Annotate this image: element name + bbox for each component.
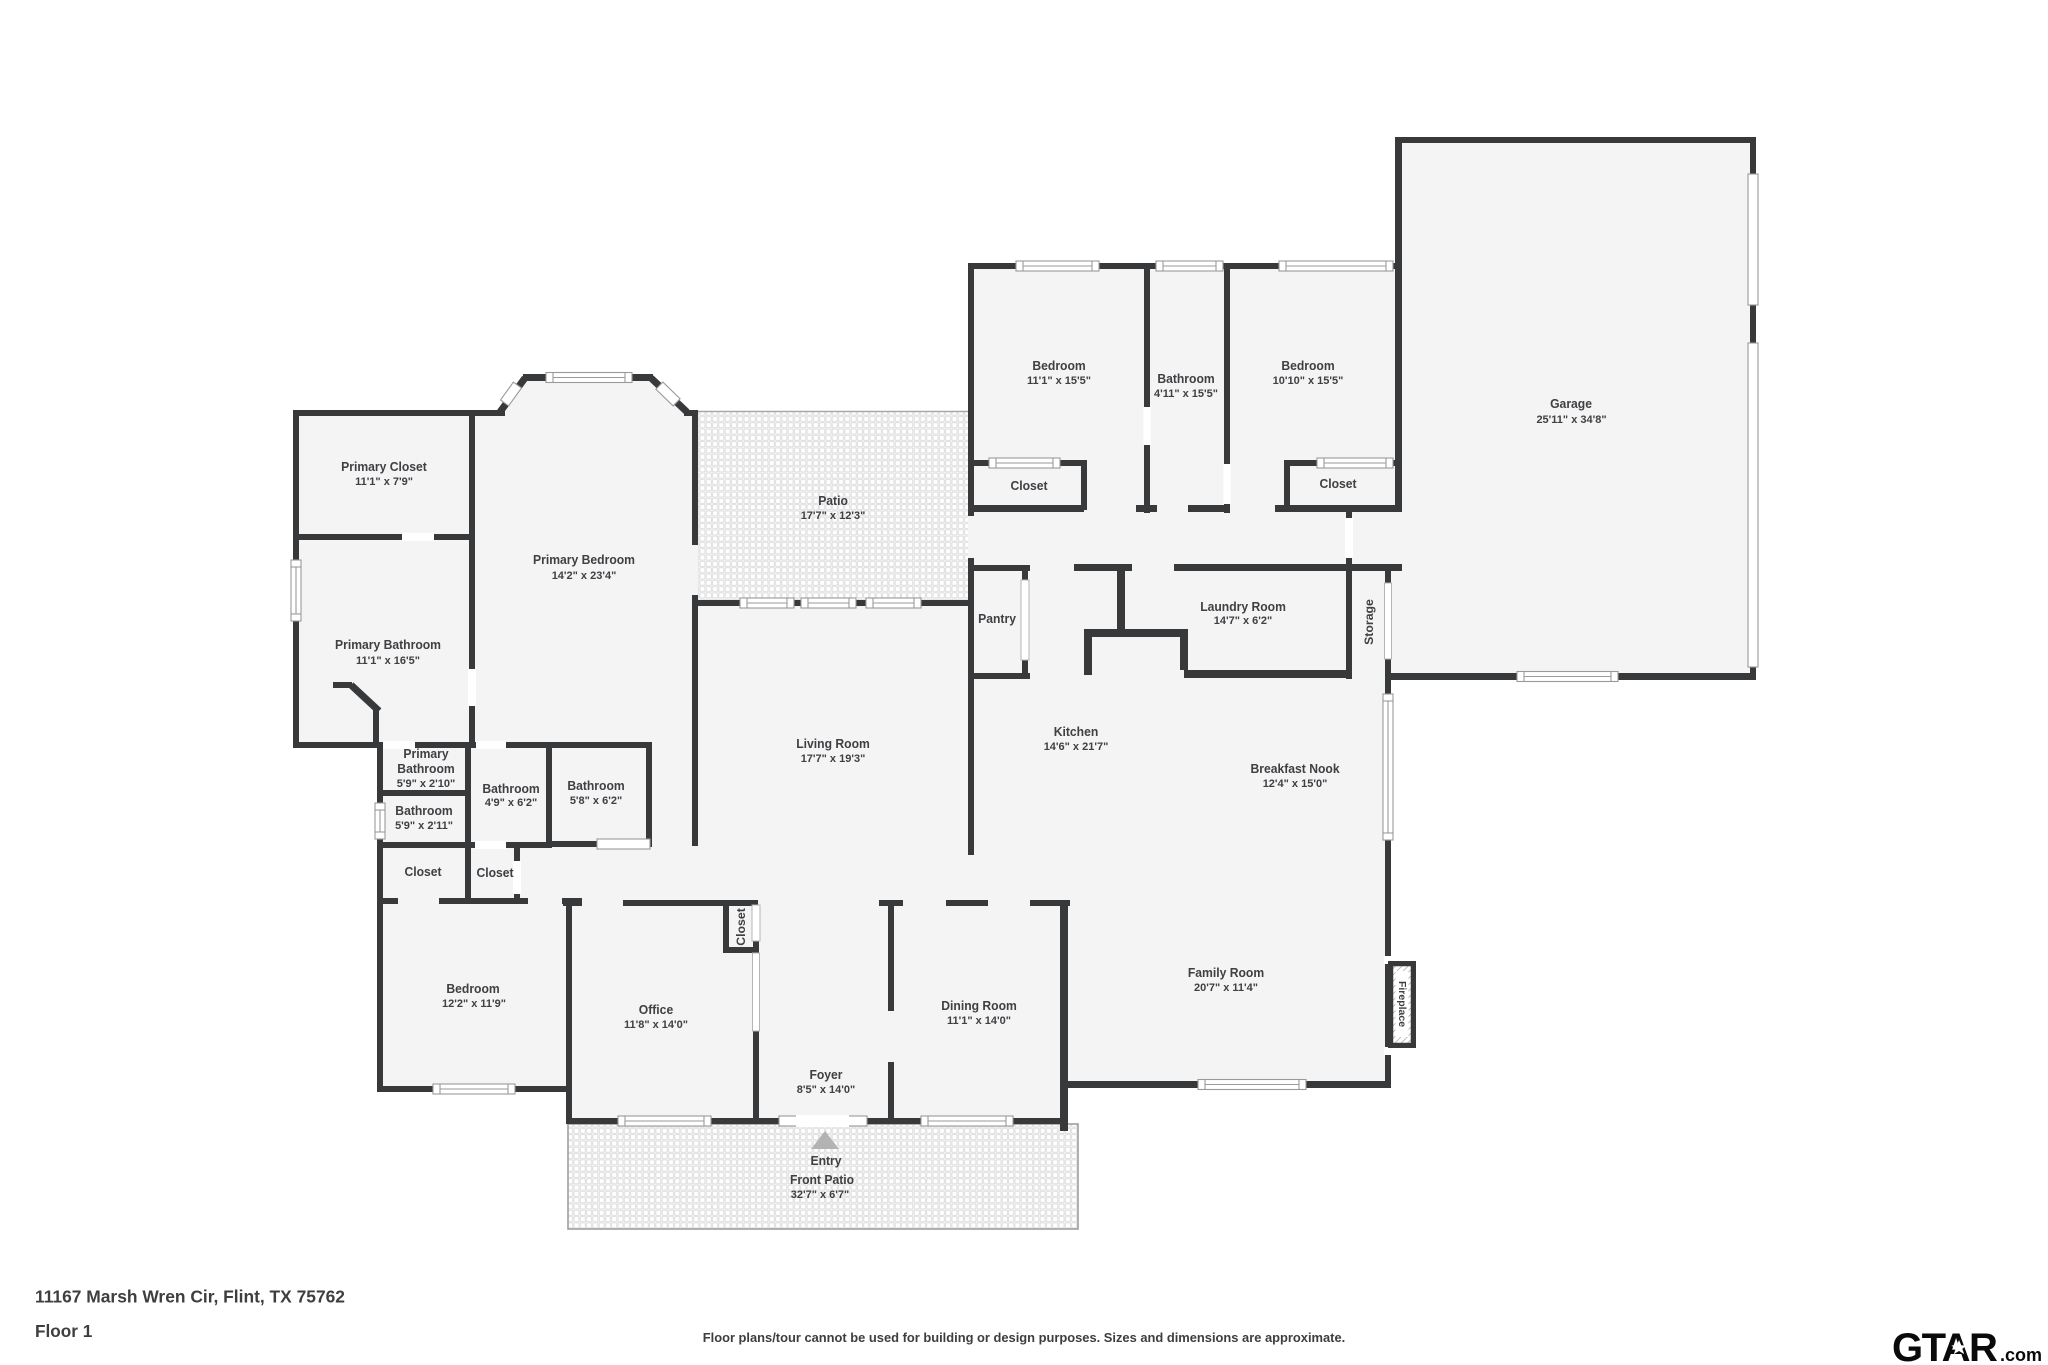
svg-text:5'9" x 2'11": 5'9" x 2'11" — [395, 820, 453, 832]
svg-text:Fireplace: Fireplace — [1396, 981, 1408, 1027]
svg-text:Bathroom: Bathroom — [567, 779, 624, 793]
svg-text:Bathroom: Bathroom — [395, 804, 452, 818]
svg-text:4'11" x 15'5": 4'11" x 15'5" — [1154, 388, 1218, 400]
svg-text:32'7" x 6'7": 32'7" x 6'7" — [791, 1189, 849, 1201]
svg-text:Patio: Patio — [818, 494, 848, 508]
svg-text:.com: .com — [2000, 1345, 2042, 1365]
svg-text:14'6" x 21'7": 14'6" x 21'7" — [1044, 741, 1109, 753]
svg-text:Bathroom: Bathroom — [397, 762, 454, 776]
svg-text:11'1" x 16'5": 11'1" x 16'5" — [356, 655, 420, 667]
svg-text:Garage: Garage — [1550, 397, 1592, 411]
svg-text:Floor plans/tour cannot be use: Floor plans/tour cannot be used for buil… — [703, 1330, 1345, 1345]
svg-text:Bedroom: Bedroom — [1281, 359, 1334, 373]
svg-text:25'11" x 34'8": 25'11" x 34'8" — [1536, 414, 1606, 426]
svg-text:Living Room: Living Room — [796, 737, 870, 751]
svg-text:Primary: Primary — [403, 747, 448, 761]
svg-text:5'8" x 6'2": 5'8" x 6'2" — [570, 795, 622, 807]
svg-text:Closet: Closet — [1010, 479, 1047, 493]
svg-text:11'1" x 15'5": 11'1" x 15'5" — [1027, 375, 1091, 387]
svg-text:Closet: Closet — [476, 866, 513, 880]
svg-text:Primary Bedroom: Primary Bedroom — [533, 553, 635, 567]
svg-text:5'9" x 2'10": 5'9" x 2'10" — [397, 778, 455, 790]
svg-text:Entry: Entry — [810, 1154, 841, 1168]
svg-text:11'1" x 7'9": 11'1" x 7'9" — [355, 476, 413, 488]
svg-text:Closet: Closet — [404, 865, 441, 879]
svg-text:Closet: Closet — [734, 908, 748, 946]
svg-text:Dining Room: Dining Room — [941, 999, 1017, 1013]
svg-text:Bathroom: Bathroom — [1157, 372, 1214, 386]
svg-text:17'7" x 19'3": 17'7" x 19'3" — [801, 753, 866, 765]
svg-text:12'2" x 11'9": 12'2" x 11'9" — [442, 998, 506, 1010]
svg-text:20'7" x 11'4": 20'7" x 11'4" — [1194, 982, 1258, 994]
svg-text:Storage: Storage — [1362, 599, 1376, 645]
svg-text:Bedroom: Bedroom — [1032, 359, 1085, 373]
svg-text:Closet: Closet — [1319, 477, 1356, 491]
svg-text:Primary Bathroom: Primary Bathroom — [335, 638, 441, 652]
svg-text:Bedroom: Bedroom — [446, 982, 499, 996]
svg-text:11167 Marsh Wren Cir, Flint, T: 11167 Marsh Wren Cir, Flint, TX 75762 — [35, 1287, 345, 1307]
svg-text:Laundry Room: Laundry Room — [1200, 600, 1286, 614]
svg-text:14'2" x 23'4": 14'2" x 23'4" — [552, 570, 617, 582]
svg-text:11'8" x 14'0": 11'8" x 14'0" — [624, 1019, 688, 1031]
svg-text:Kitchen: Kitchen — [1054, 725, 1099, 739]
svg-text:Office: Office — [639, 1003, 673, 1017]
svg-text:Primary Closet: Primary Closet — [341, 460, 427, 474]
svg-text:14'7" x 6'2": 14'7" x 6'2" — [1214, 615, 1272, 627]
svg-text:Family Room: Family Room — [1188, 966, 1264, 980]
svg-text:Front Patio: Front Patio — [790, 1173, 854, 1187]
svg-text:10'10" x 15'5": 10'10" x 15'5" — [1273, 375, 1344, 387]
svg-text:11'1" x 14'0": 11'1" x 14'0" — [947, 1015, 1011, 1027]
svg-text:Foyer: Foyer — [809, 1068, 842, 1082]
svg-text:12'4" x 15'0": 12'4" x 15'0" — [1263, 778, 1328, 790]
svg-text:Breakfast Nook: Breakfast Nook — [1250, 762, 1339, 776]
svg-text:8'5" x 14'0": 8'5" x 14'0" — [797, 1084, 855, 1096]
svg-text:4'9" x 6'2": 4'9" x 6'2" — [485, 797, 537, 809]
svg-text:Bathroom: Bathroom — [482, 782, 539, 796]
svg-text:17'7" x 12'3": 17'7" x 12'3" — [801, 510, 866, 522]
svg-text:GTAR: GTAR — [1892, 1326, 1998, 1365]
svg-text:Pantry: Pantry — [978, 612, 1016, 626]
svg-text:Floor 1: Floor 1 — [35, 1321, 93, 1341]
